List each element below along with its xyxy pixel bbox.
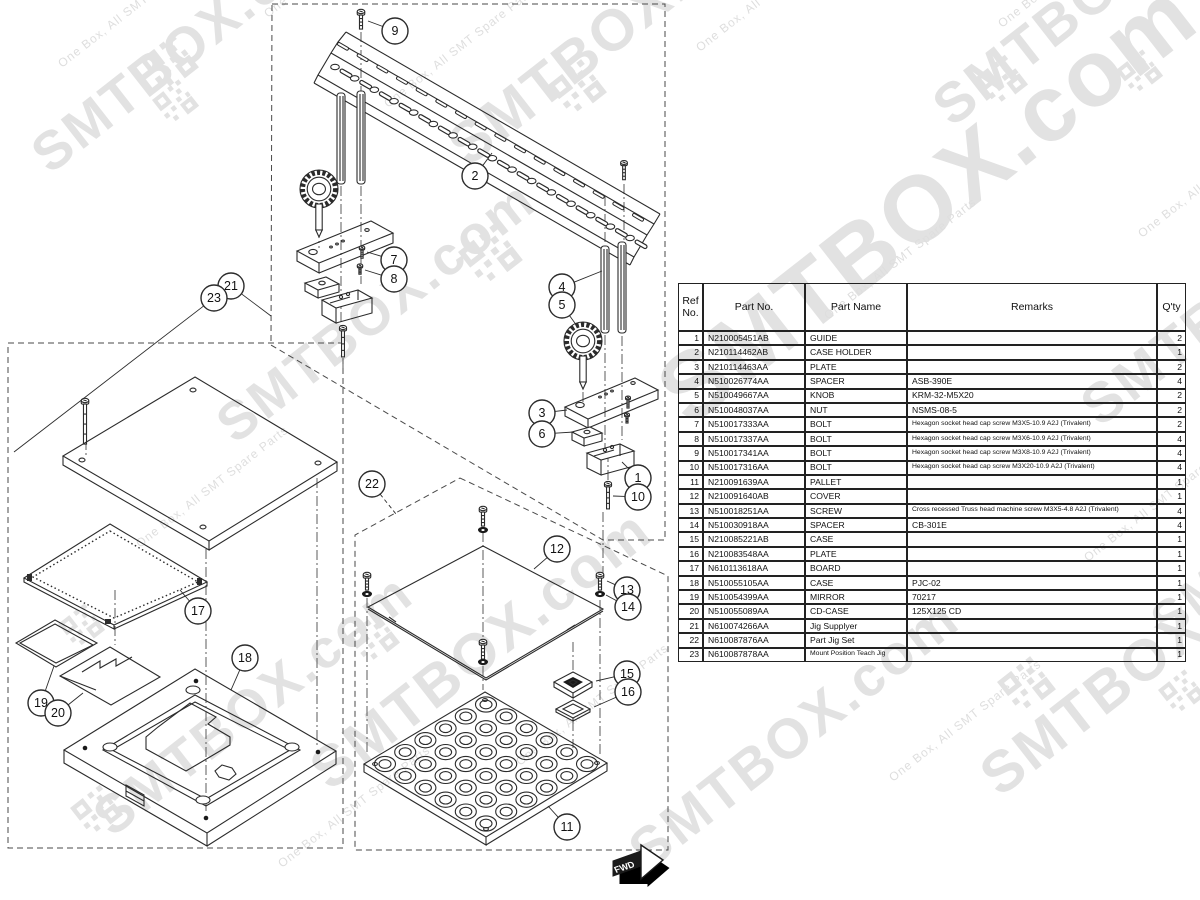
exploded-parts-diagram-page: SMTBOX.comSMTBOX.comSMTBOX.comSMTBOX.com… — [0, 0, 1200, 900]
table-cell: 20 — [678, 604, 703, 618]
table-cell: 22 — [678, 633, 703, 647]
table-cell: 4 — [1157, 374, 1186, 388]
table-cell: 17 — [678, 561, 703, 575]
table-row: 23N610087878AAMount Position Teach Jig1 — [678, 648, 1186, 662]
callout-number: 12 — [550, 542, 564, 556]
callout-leader — [380, 494, 396, 514]
table-cell: N210114462AB — [703, 345, 805, 359]
table-cell: MIRROR — [805, 590, 907, 604]
watermark-text: One Box, All SMT Spare Parts — [513, 641, 671, 769]
callout-number: 1 — [635, 471, 642, 485]
column-header: Part Name — [805, 283, 907, 331]
table-cell: 9 — [678, 446, 703, 460]
table-cell: PLATE — [805, 360, 907, 374]
callout-number: 9 — [392, 24, 399, 38]
table-cell: Hexagon socket head cap screw M3X20-10.9… — [907, 461, 1157, 475]
table-cell: 1 — [1157, 590, 1186, 604]
plate — [565, 378, 658, 428]
callout-leader — [14, 306, 204, 452]
table-row: 17N610113618AABOARD1 — [678, 561, 1186, 575]
table-cell: 1 — [1157, 561, 1186, 575]
table-cell: BOLT — [805, 432, 907, 446]
table-row: 9N510017341AABOLTHexagon socket head cap… — [678, 446, 1186, 460]
table-cell: N610087878AA — [703, 648, 805, 662]
table-cell: N510049667AA — [703, 389, 805, 403]
table-cell: N610074266AA — [703, 619, 805, 633]
table-cell: 1 — [1157, 345, 1186, 359]
bolt — [604, 481, 611, 508]
table-row: 4N510026774AASPACERASB-390E4 — [678, 374, 1186, 388]
table-cell: Hexagon socket head cap screw M3X5-10.9 … — [907, 417, 1157, 431]
bolt — [621, 161, 628, 180]
table-cell: Jig Supplyer — [805, 619, 907, 633]
table-cell: SCREW — [805, 504, 907, 518]
table-cell: N210085221AB — [703, 532, 805, 546]
table-cell: 4 — [1157, 461, 1186, 475]
screw — [81, 398, 89, 444]
table-cell: N510017337AA — [703, 432, 805, 446]
table-cell: BOLT — [805, 417, 907, 431]
table-cell: CASE — [805, 532, 907, 546]
parts-table-body: 1N210005451ABGUIDE22N210114462ABCASE HOL… — [678, 331, 1186, 662]
table-row: 22N610087876AAPart Jig Set1 — [678, 633, 1186, 647]
parts-table-header: Ref No.Part No.Part NameRemarksQ'ty — [678, 283, 1186, 331]
table-row: 8N510017337AABOLTHexagon socket head cap… — [678, 432, 1186, 446]
table-cell: N610087876AA — [703, 633, 805, 647]
table-cell: 2 — [1157, 389, 1186, 403]
table-cell: N510055105AA — [703, 576, 805, 590]
bolt — [357, 9, 365, 29]
table-cell: N510048037AA — [703, 403, 805, 417]
callout-leader — [68, 693, 83, 705]
table-cell — [907, 489, 1157, 503]
table-cell: NUT — [805, 403, 907, 417]
spacer-case — [554, 672, 592, 698]
table-cell: 2 — [1157, 331, 1186, 345]
table-cell — [907, 561, 1157, 575]
table-cell: ASB-390E — [907, 374, 1157, 388]
table-cell: N510017316AA — [703, 461, 805, 475]
table-cell — [907, 547, 1157, 561]
knob — [564, 322, 602, 389]
table-cell: N510054399AA — [703, 590, 805, 604]
callout-number: 6 — [539, 427, 546, 441]
spacer-rod — [618, 242, 626, 333]
table-cell: N510055089AA — [703, 604, 805, 618]
knob — [300, 170, 338, 237]
table-cell — [907, 345, 1157, 359]
column-header: Part No. — [703, 283, 805, 331]
column-header: Ref No. — [678, 283, 703, 331]
table-cell: CASE HOLDER — [805, 345, 907, 359]
parts-table-panel: Ref No.Part No.Part NameRemarksQ'ty 1N21… — [678, 283, 1186, 662]
screw — [479, 506, 487, 526]
table-cell — [907, 648, 1157, 662]
table-cell: 21 — [678, 619, 703, 633]
bolt — [624, 413, 629, 423]
table-cell: N510018251AA — [703, 504, 805, 518]
watermark-text: SMTBOX.com — [205, 169, 547, 455]
table-cell: 4 — [1157, 518, 1186, 532]
table-row: 7N510017333AABOLTHexagon socket head cap… — [678, 417, 1186, 431]
callout-number: 18 — [238, 651, 252, 665]
table-cell: SPACER — [805, 518, 907, 532]
table-cell: Cross recessed Truss head machine screw … — [907, 504, 1157, 518]
callout-number: 5 — [559, 298, 566, 312]
plate — [297, 221, 393, 273]
table-cell: 1 — [1157, 619, 1186, 633]
table-cell: 12 — [678, 489, 703, 503]
spacer-rod — [337, 93, 345, 184]
table-cell: 18 — [678, 576, 703, 590]
table-cell: KNOB — [805, 389, 907, 403]
callout-leader — [367, 252, 382, 256]
table-cell: N510026774AA — [703, 374, 805, 388]
table-cell: N510030918AA — [703, 518, 805, 532]
table-cell: N510017341AA — [703, 446, 805, 460]
callout-number: 21 — [224, 279, 238, 293]
table-row: 6N510048037AANUTNSMS-08-52 — [678, 403, 1186, 417]
callout-leader — [368, 21, 383, 26]
table-cell: Hexagon socket head cap screw M3X6-10.9 … — [907, 432, 1157, 446]
table-row: 18N510055105AACASEPJC-021 — [678, 576, 1186, 590]
table-cell: KRM-32-M5X20 — [907, 389, 1157, 403]
column-header: Q'ty — [1157, 283, 1186, 331]
table-cell: 1 — [1157, 633, 1186, 647]
watermark-text: One Box, All SMT Spare Parts — [133, 423, 291, 551]
table-cell: 4 — [678, 374, 703, 388]
table-row: 21N610074266AAJig Supplyer1 — [678, 619, 1186, 633]
table-cell: 19 — [678, 590, 703, 604]
table-cell: 1 — [678, 331, 703, 345]
table-cell: Part Jig Set — [805, 633, 907, 647]
column-header: Remarks — [907, 283, 1157, 331]
table-cell: 4 — [1157, 432, 1186, 446]
table-cell: N210083548AA — [703, 547, 805, 561]
spacer-rod — [357, 91, 365, 184]
table-cell: PLATE — [805, 547, 907, 561]
table-cell: 7 — [678, 417, 703, 431]
callout-number: 17 — [191, 604, 205, 618]
table-cell: N610113618AA — [703, 561, 805, 575]
table-cell: N210091640AB — [703, 489, 805, 503]
table-cell — [907, 619, 1157, 633]
callout-number: 7 — [391, 253, 398, 267]
table-cell: 3 — [678, 360, 703, 374]
bolt — [357, 264, 362, 274]
table-cell: N210091639AA — [703, 475, 805, 489]
table-cell — [907, 331, 1157, 345]
table-cell: 11 — [678, 475, 703, 489]
table-cell — [907, 633, 1157, 647]
table-cell: 23 — [678, 648, 703, 662]
table-cell: 70217 — [907, 590, 1157, 604]
watermark-qr-pattern — [58, 603, 105, 650]
watermark-text: One Box, All SMT Spare Parts — [693, 0, 851, 54]
table-cell: 2 — [678, 345, 703, 359]
callout-number: 10 — [631, 490, 645, 504]
table-row: 11N210091639AAPALLET1 — [678, 475, 1186, 489]
watermark-text: SMTBOX.com — [20, 0, 362, 184]
table-cell: CB-301E — [907, 518, 1157, 532]
table-row: 2N210114462ABCASE HOLDER1 — [678, 345, 1186, 359]
callout-number: 8 — [391, 272, 398, 286]
nut-block — [305, 277, 339, 298]
table-row: 12N210091640ABCOVER1 — [678, 489, 1186, 503]
callout-leader — [548, 806, 558, 817]
table-cell: 14 — [678, 518, 703, 532]
table-cell: SPACER — [805, 374, 907, 388]
spacer-rod — [601, 246, 609, 333]
nut-block — [572, 427, 602, 446]
table-cell: 1 — [1157, 532, 1186, 546]
table-cell: 10 — [678, 461, 703, 475]
table-cell: N210114463AA — [703, 360, 805, 374]
table-cell: COVER — [805, 489, 907, 503]
callout-leader — [180, 590, 190, 601]
table-row: 15N210085221ABCASE1 — [678, 532, 1186, 546]
table-cell: CD-CASE — [805, 604, 907, 618]
table-cell: PJC-02 — [907, 576, 1157, 590]
table-cell: N210005451AB — [703, 331, 805, 345]
table-row: 10N510017316AABOLTHexagon socket head ca… — [678, 461, 1186, 475]
table-cell: 16 — [678, 547, 703, 561]
table-cell: 4 — [1157, 504, 1186, 518]
table-row: 1N210005451ABGUIDE2 — [678, 331, 1186, 345]
table-row: 5N510049667AAKNOBKRM-32-M5X202 — [678, 389, 1186, 403]
callout-number: 22 — [365, 477, 379, 491]
callout-leader — [574, 271, 602, 282]
table-row: 20N510055089AACD-CASE125X125 CD1 — [678, 604, 1186, 618]
table-cell — [907, 532, 1157, 546]
table-cell: 1 — [1157, 576, 1186, 590]
table-cell: 2 — [1157, 417, 1186, 431]
callout-leader — [241, 294, 271, 316]
table-cell: PALLET — [805, 475, 907, 489]
parts-table: Ref No.Part No.Part NameRemarksQ'ty 1N21… — [678, 283, 1186, 662]
table-cell: Hexagon socket head cap screw M3X8-10.9 … — [907, 446, 1157, 460]
table-cell — [907, 475, 1157, 489]
table-cell: CASE — [805, 576, 907, 590]
table-row: 14N510030918AASPACERCB-301E4 — [678, 518, 1186, 532]
table-cell: BOLT — [805, 461, 907, 475]
table-cell: 125X125 CD — [907, 604, 1157, 618]
table-cell: 1 — [1157, 475, 1186, 489]
table-cell: BOLT — [805, 446, 907, 460]
table-row: 13N510018251AASCREWCross recessed Truss … — [678, 504, 1186, 518]
table-cell: NSMS-08-5 — [907, 403, 1157, 417]
table-cell: 1 — [1157, 489, 1186, 503]
table-cell: 4 — [1157, 446, 1186, 460]
callout-number: 20 — [51, 706, 65, 720]
watermark-text: One Box, All SMT Spare Parts — [1135, 113, 1200, 241]
table-cell: 2 — [1157, 403, 1186, 417]
callout-number: 11 — [561, 820, 574, 834]
table-cell: Mount Position Teach Jig — [805, 648, 907, 662]
table-row: 16N210083548AAPLATE1 — [678, 547, 1186, 561]
table-cell: 2 — [1157, 360, 1186, 374]
table-cell: 1 — [1157, 604, 1186, 618]
callout-number: 2 — [472, 169, 479, 183]
callout-leader — [555, 432, 574, 433]
table-cell: BOARD — [805, 561, 907, 575]
callout-number: 16 — [621, 685, 635, 699]
table-row: 3N210114463AAPLATE2 — [678, 360, 1186, 374]
callout-number: 23 — [207, 291, 221, 305]
table-cell: 1 — [1157, 648, 1186, 662]
callout-number: 3 — [539, 406, 546, 420]
callout-number: 14 — [621, 600, 635, 614]
table-cell: 8 — [678, 432, 703, 446]
table-cell: 15 — [678, 532, 703, 546]
callout-leader — [45, 666, 54, 691]
table-cell: N510017333AA — [703, 417, 805, 431]
mirror — [16, 620, 97, 667]
table-cell: 1 — [1157, 547, 1186, 561]
table-row: 19N510054399AAMIRROR702171 — [678, 590, 1186, 604]
table-cell: 13 — [678, 504, 703, 518]
table-cell: GUIDE — [805, 331, 907, 345]
table-cell: 5 — [678, 389, 703, 403]
table-cell — [907, 360, 1157, 374]
table-cell: 6 — [678, 403, 703, 417]
board — [24, 524, 207, 629]
